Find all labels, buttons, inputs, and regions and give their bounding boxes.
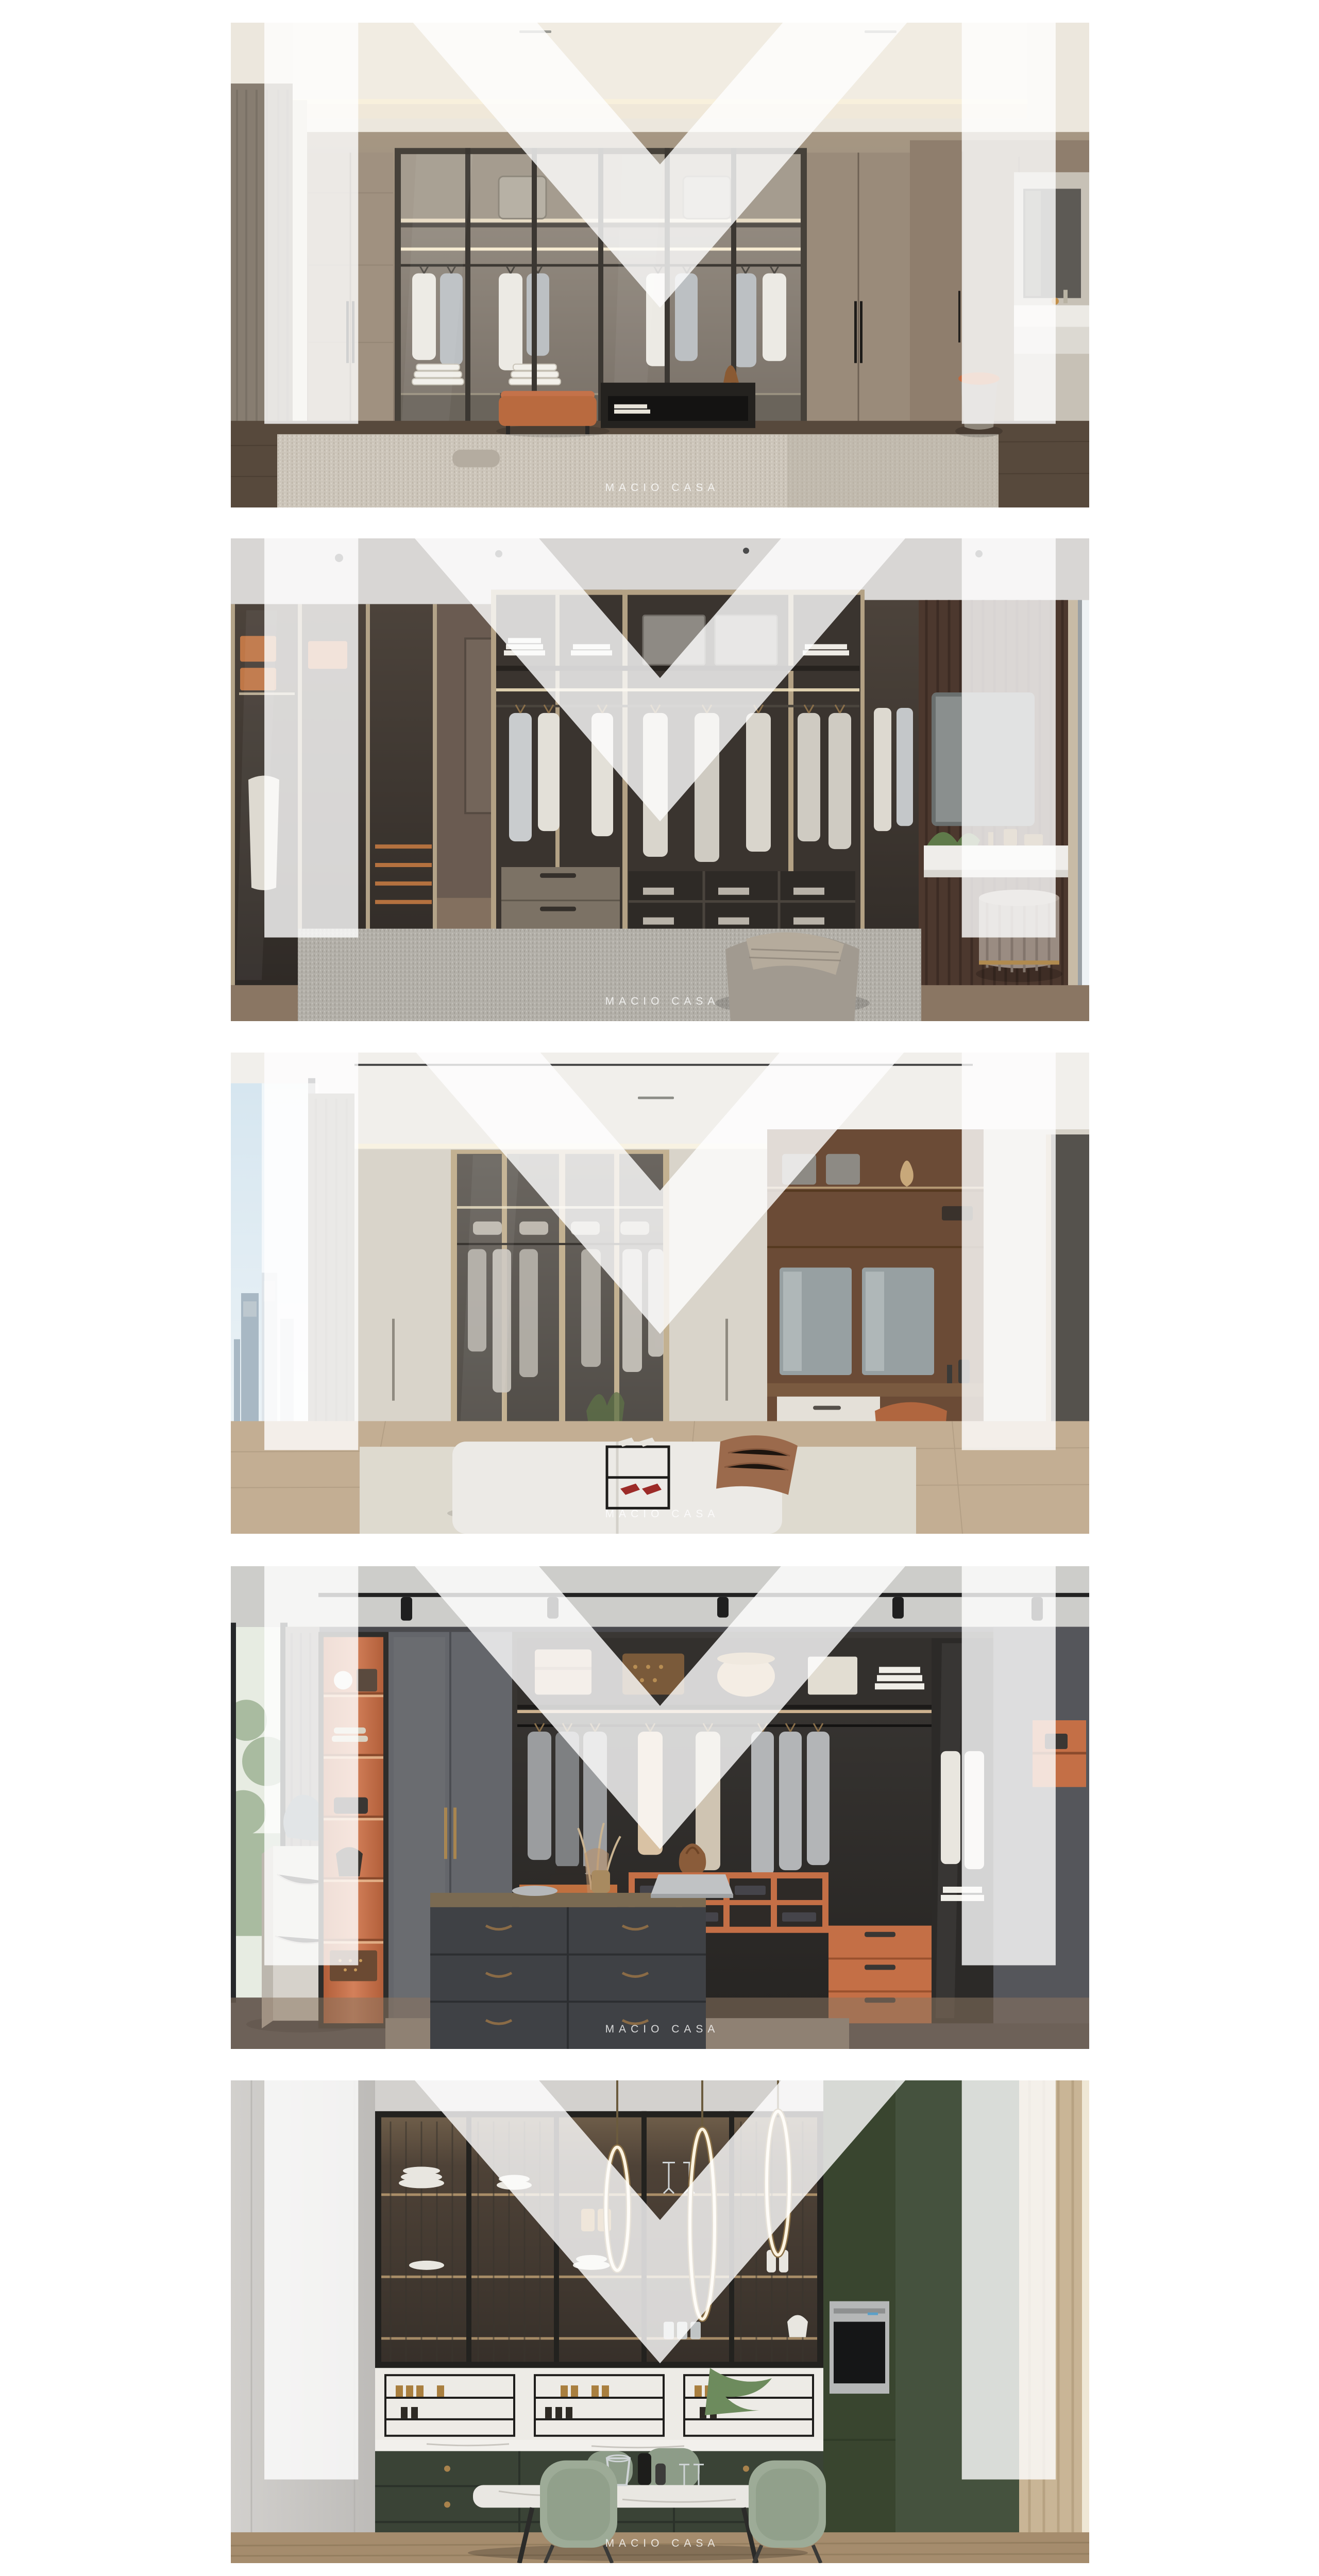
render-4-illustration xyxy=(231,1566,1089,2049)
render-3-illustration xyxy=(231,1053,1089,1534)
gallery-image-4: MACIO CASA xyxy=(231,1566,1089,2049)
gallery-image-2: MACIO CASA xyxy=(231,538,1089,1021)
render-1-illustration xyxy=(231,23,1089,507)
gallery-image-3: MACIO CASA xyxy=(231,1053,1089,1534)
gallery-image-1: MACIO CASA xyxy=(231,23,1089,507)
render-5-illustration xyxy=(231,2080,1089,2563)
gallery-page: MACIO CASA xyxy=(0,0,1319,2576)
gallery-image-5: MACIO CASA xyxy=(231,2080,1089,2563)
render-2-illustration xyxy=(231,538,1089,1021)
